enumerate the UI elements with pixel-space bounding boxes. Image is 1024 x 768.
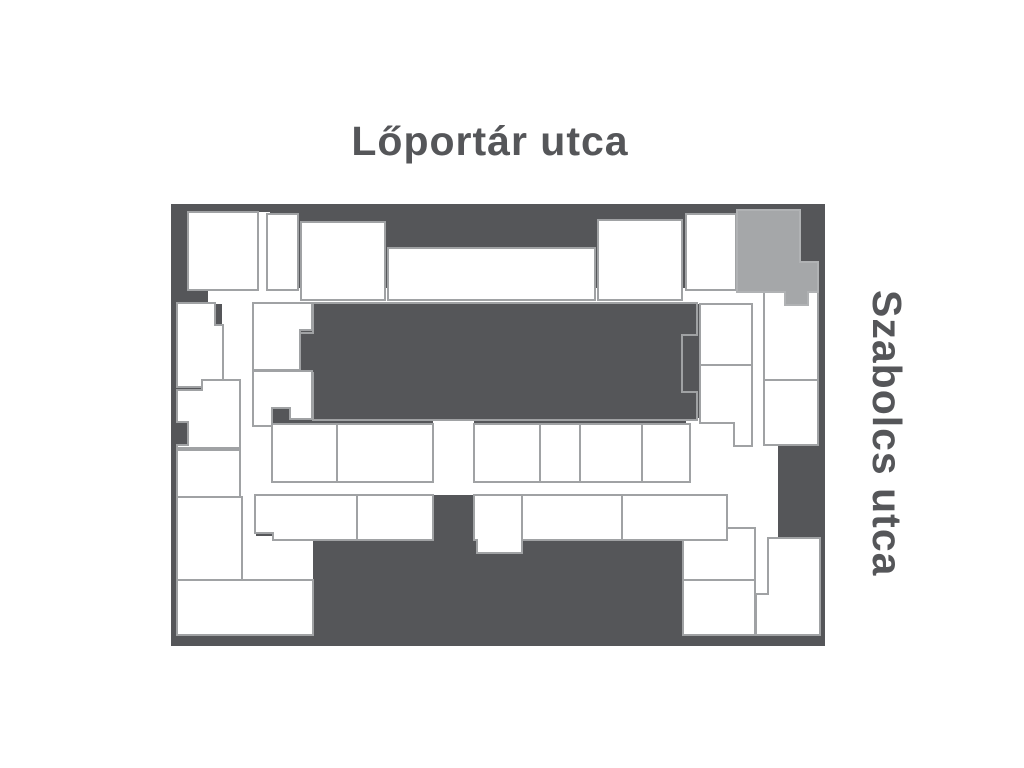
east-dark-chunk	[778, 445, 818, 537]
unit-w4[interactable]	[177, 497, 242, 580]
corridor-center	[433, 420, 474, 495]
unit-r5[interactable]	[580, 424, 642, 482]
unit-s3[interactable]	[474, 495, 522, 553]
unit-e2[interactable]	[764, 380, 818, 445]
unit-r6[interactable]	[642, 424, 690, 482]
unit-n3[interactable]	[301, 222, 385, 300]
unit-s1[interactable]	[255, 495, 357, 540]
courtyard-block	[300, 303, 697, 420]
unit-s4[interactable]	[522, 495, 622, 540]
unit-s5[interactable]	[622, 495, 727, 540]
unit-n6[interactable]	[686, 214, 736, 290]
unit-r3[interactable]	[474, 424, 540, 482]
corridor-row1-left	[253, 424, 274, 482]
unit-n4[interactable]	[388, 248, 595, 300]
unit-r1[interactable]	[272, 424, 337, 482]
unit-n2[interactable]	[267, 214, 298, 290]
unit-r4[interactable]	[540, 424, 580, 482]
unit-m1[interactable]	[700, 304, 752, 365]
corridor-left-bottom	[242, 536, 315, 580]
unit-n5[interactable]	[598, 220, 682, 300]
west-border-bump-mid	[171, 420, 188, 447]
unit-s2[interactable]	[357, 495, 433, 540]
unit-w5[interactable]	[177, 580, 313, 635]
unit-w3[interactable]	[177, 450, 240, 497]
site-plan-canvas: Lőportár utca Szabolcs utca	[0, 0, 1024, 768]
unit-b2[interactable]	[683, 580, 755, 635]
floor-plan-svg	[0, 0, 1024, 768]
unit-n1[interactable]	[188, 212, 258, 290]
unit-r2[interactable]	[337, 424, 433, 482]
